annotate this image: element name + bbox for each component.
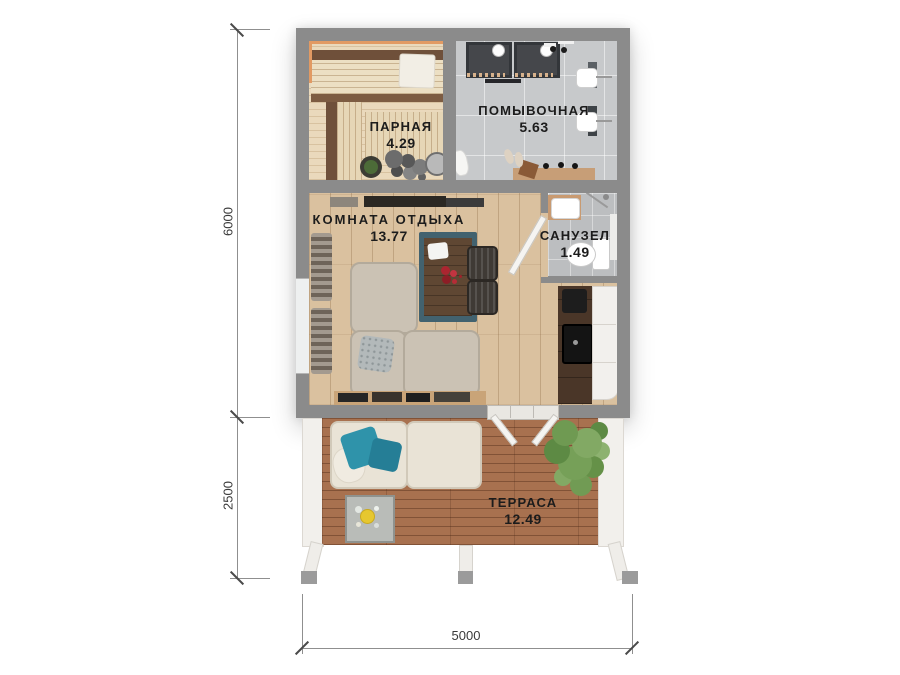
wardrobe-seam	[593, 324, 616, 325]
washbasin	[576, 68, 598, 88]
sauna-side-bench-edge	[326, 102, 337, 180]
floor-squeegee	[485, 79, 521, 83]
wardrobe	[592, 286, 619, 400]
shelf-item	[558, 41, 574, 44]
post-foot-middle	[458, 571, 473, 584]
terrace-plant	[552, 420, 578, 446]
toiletry-item	[550, 46, 556, 52]
wall-divider-horizontal	[296, 180, 630, 193]
door-frame-mullion	[533, 405, 534, 418]
room-label-sanuzel: САНУЗЕЛ 1.49	[540, 228, 610, 262]
chair	[467, 280, 498, 315]
room-label-komnata-otdyha: КОМНАТА ОТДЫХА 13.77	[313, 212, 466, 246]
room-name: САНУЗЕЛ	[540, 228, 610, 244]
shelf-clutter	[330, 197, 358, 207]
shelf-item	[434, 392, 470, 402]
room-name: ПАРНАЯ	[370, 119, 433, 135]
sauna-plant-top	[364, 160, 378, 174]
shower-drain	[515, 73, 553, 77]
sauna-bench-edge	[311, 94, 443, 102]
appliance-knob	[573, 340, 578, 345]
window-left-wall	[296, 278, 309, 374]
room-name: ПОМЫВОЧНАЯ	[478, 103, 589, 119]
terrace-sofa-cushion	[406, 421, 482, 489]
room-area: 13.77	[313, 228, 466, 246]
room-area: 1.49	[540, 244, 610, 262]
room-label-parnaya: ПАРНАЯ 4.29	[370, 119, 433, 153]
shelf-item	[338, 393, 368, 402]
wall-shelf	[364, 196, 446, 207]
bench-item	[558, 162, 564, 168]
wall-outer-top	[296, 28, 630, 41]
terrace-rail-right	[598, 418, 624, 547]
terrace-pillow-teal	[367, 437, 403, 473]
sofa-pillow	[357, 335, 395, 373]
post-foot-right	[622, 571, 638, 584]
shelf-item	[372, 392, 402, 402]
firewood-stack	[311, 308, 332, 374]
wall-outer-bottom	[296, 405, 630, 418]
terrace-table-lemons	[360, 509, 375, 524]
dimension-label-height-main: 6000	[221, 199, 236, 245]
table-berries	[441, 266, 450, 275]
room-label-pomyvochnaya: ПОМЫВОЧНАЯ 5.63	[478, 103, 589, 137]
post-foot-left	[301, 571, 317, 584]
wall-wc-bottom	[541, 276, 617, 283]
wc-shower-head	[603, 194, 609, 200]
terrace-rail-left	[302, 418, 324, 547]
room-label-terrasa: ТЕРРАСА 12.49	[489, 495, 558, 529]
dimension-line-horizontal	[302, 648, 632, 649]
room-name: КОМНАТА ОТДЫХА	[313, 212, 466, 228]
shower-drain	[467, 73, 505, 77]
wall-outer-right	[617, 28, 630, 418]
shower-head	[492, 44, 505, 57]
shelf-item	[406, 393, 430, 402]
sauna-led-strip-top	[309, 41, 443, 44]
bench-item	[543, 163, 549, 169]
sauna-towel	[398, 53, 435, 88]
coffee-machine	[562, 289, 587, 313]
sofa-chaise	[350, 262, 418, 334]
wardrobe-seam	[593, 362, 616, 363]
shelf-clutter	[446, 198, 484, 207]
sofa-seat	[403, 330, 480, 397]
chair	[467, 246, 498, 281]
dimension-label-height-terrace: 2500	[221, 473, 236, 519]
door-frame-mullion	[510, 405, 511, 418]
dimension-line-vertical	[237, 30, 238, 578]
faucet	[596, 120, 612, 122]
room-name: ТЕРРАСА	[489, 495, 558, 511]
wc-sink	[551, 198, 580, 219]
sauna-led-strip-left	[309, 41, 312, 83]
dimension-label-width: 5000	[436, 628, 496, 643]
floor-plan-canvas: 6000 2500 5000	[0, 0, 900, 675]
bench-item	[572, 163, 578, 169]
room-area: 4.29	[370, 135, 433, 153]
sauna-side-bench	[337, 102, 362, 180]
faucet	[596, 76, 612, 78]
wall-divider-sauna-washroom	[443, 28, 456, 193]
wc-shelf	[610, 214, 617, 260]
room-area: 5.63	[478, 119, 589, 137]
room-area: 12.49	[489, 511, 558, 529]
toiletry-item	[561, 47, 567, 53]
